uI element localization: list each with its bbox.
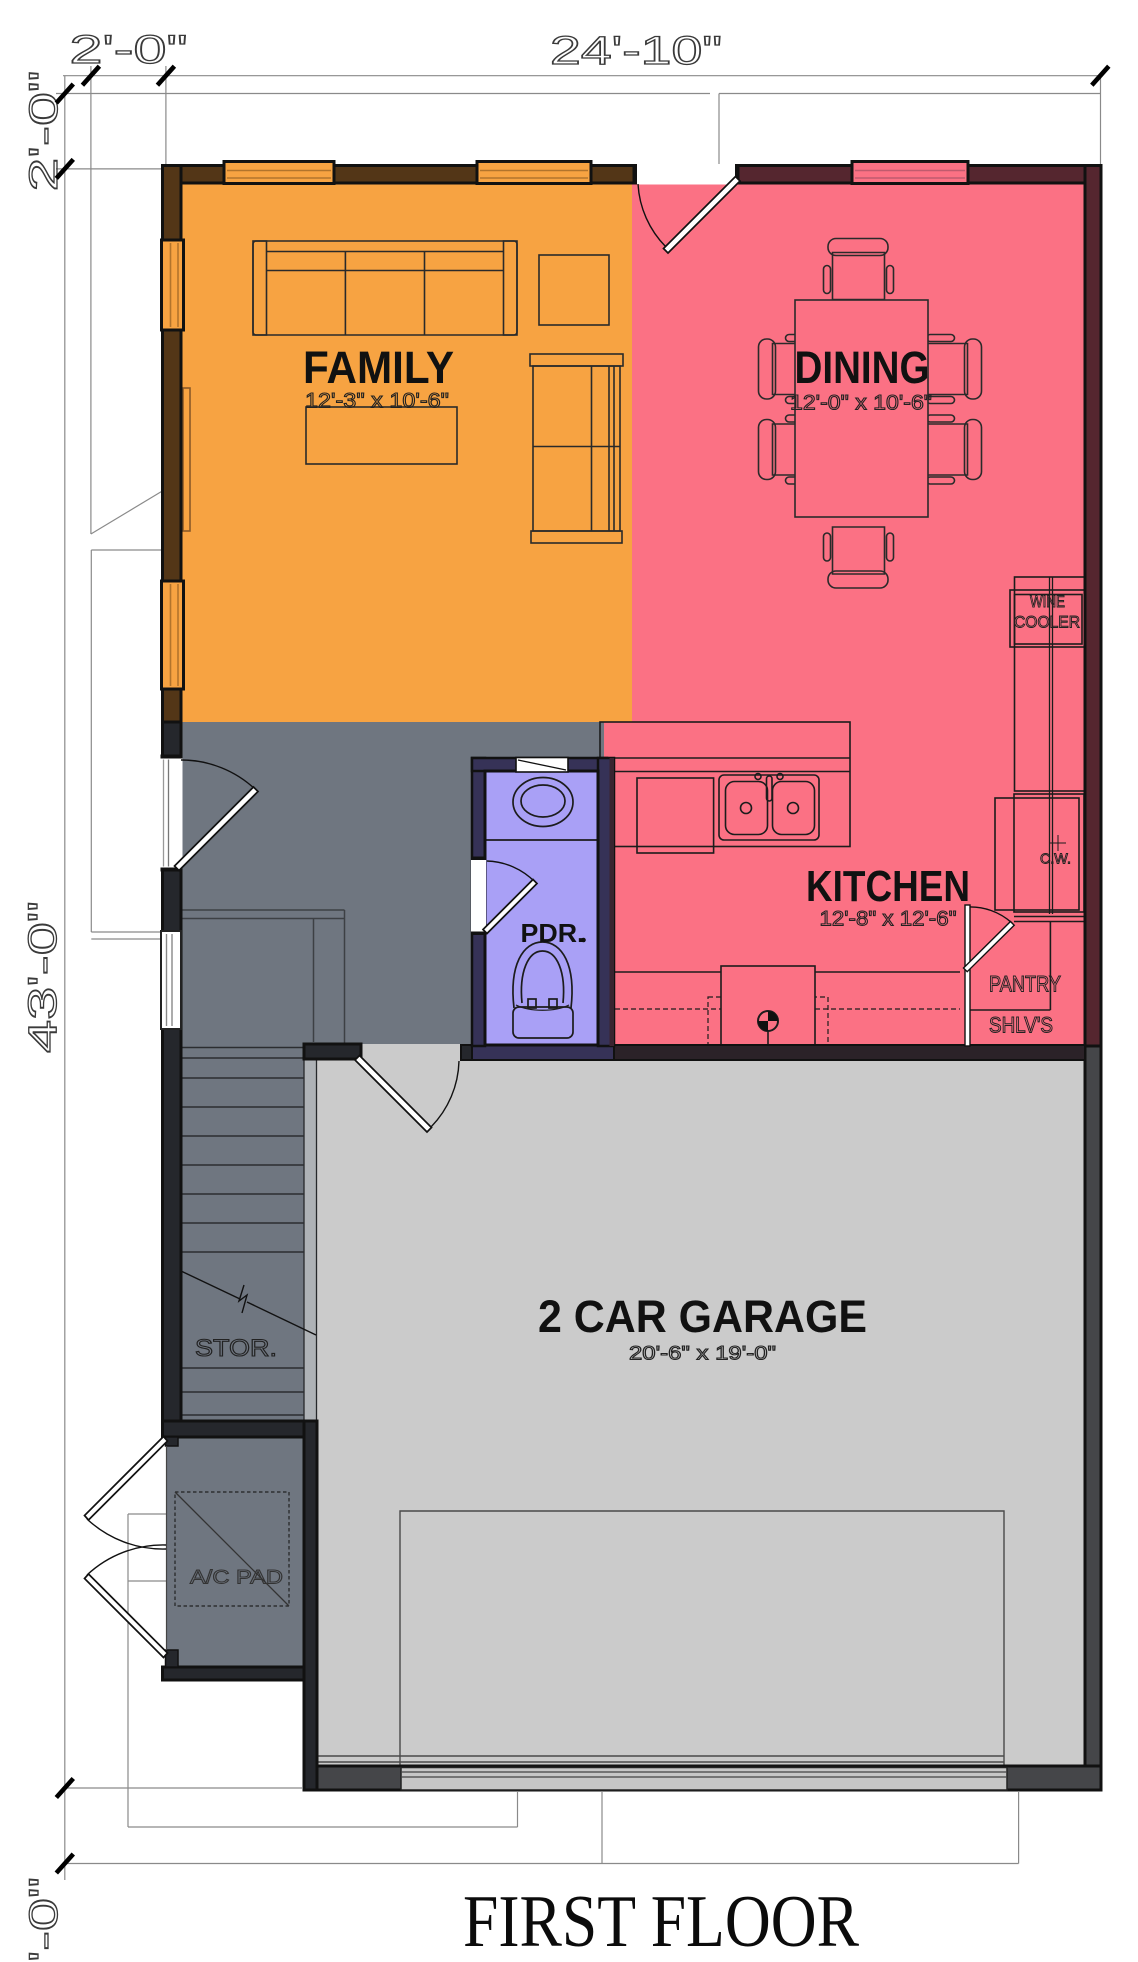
svg-text:20'-6" x 19'-0": 20'-6" x 19'-0": [629, 1344, 776, 1365]
svg-text:2'-0": 2'-0": [22, 1877, 66, 1962]
svg-text:PDR.: PDR.: [521, 918, 585, 948]
svg-text:12'-8" x 12'-6": 12'-8" x 12'-6": [820, 908, 957, 931]
svg-text:FAMILY: FAMILY: [303, 342, 454, 393]
svg-text:2'-0": 2'-0": [70, 28, 188, 72]
svg-text:2 CAR GARAGE: 2 CAR GARAGE: [538, 1291, 867, 1342]
svg-text:FIRST FLOOR: FIRST FLOOR: [463, 1881, 860, 1962]
svg-text:PANTRY: PANTRY: [989, 972, 1061, 997]
svg-text:43'-0": 43'-0": [21, 901, 65, 1053]
svg-text:24'-10": 24'-10": [550, 29, 722, 73]
svg-text:STOR.: STOR.: [195, 1335, 277, 1362]
svg-text:COOLER: COOLER: [1014, 614, 1080, 632]
svg-text:WINE: WINE: [1030, 593, 1065, 611]
svg-text:12'-0" x 10'-6": 12'-0" x 10'-6": [790, 392, 932, 415]
svg-text:A/C PAD: A/C PAD: [190, 1568, 283, 1589]
svg-text:DINING: DINING: [795, 342, 930, 393]
svg-text:12'-3" x 10'-6": 12'-3" x 10'-6": [305, 390, 449, 413]
svg-text:C.W.: C.W.: [1040, 851, 1071, 868]
svg-text:SHLV'S: SHLV'S: [989, 1013, 1053, 1038]
svg-text:KITCHEN: KITCHEN: [806, 862, 970, 911]
